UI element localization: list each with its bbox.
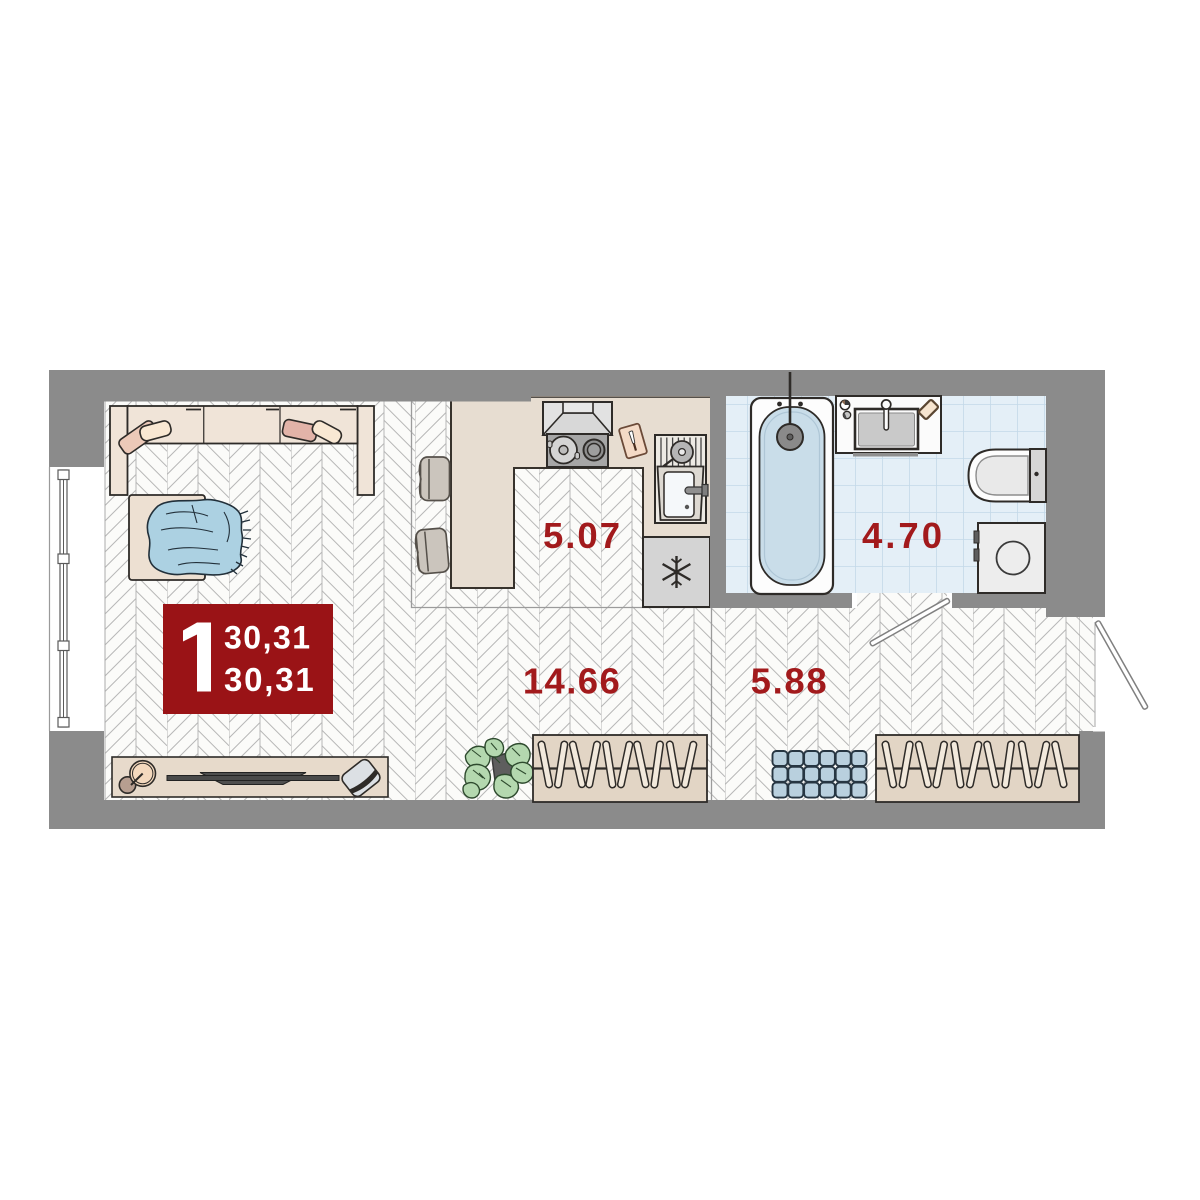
- svg-text:14.66: 14.66: [523, 661, 621, 702]
- svg-text:5.88: 5.88: [751, 661, 829, 702]
- svg-text:4.70: 4.70: [862, 515, 945, 556]
- svg-text:30,31: 30,31: [224, 620, 312, 656]
- svg-text:5.07: 5.07: [543, 515, 622, 556]
- svg-text:30,31: 30,31: [224, 661, 316, 698]
